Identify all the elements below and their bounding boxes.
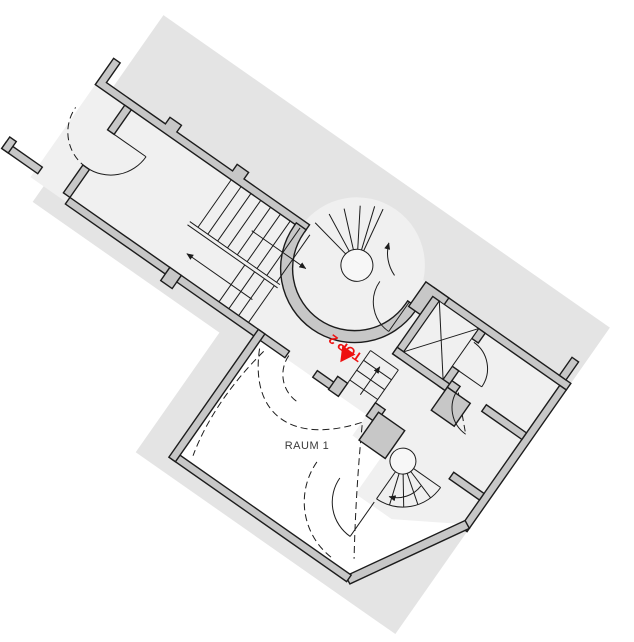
floor-plan-canvas: TOP 2 RAUM 1 xyxy=(0,0,634,642)
floor-plan-drawing: TOP 2 RAUM 1 xyxy=(0,0,634,642)
label-raum1: RAUM 1 xyxy=(285,440,330,452)
rotated-plan-group: TOP 2 xyxy=(0,0,610,634)
